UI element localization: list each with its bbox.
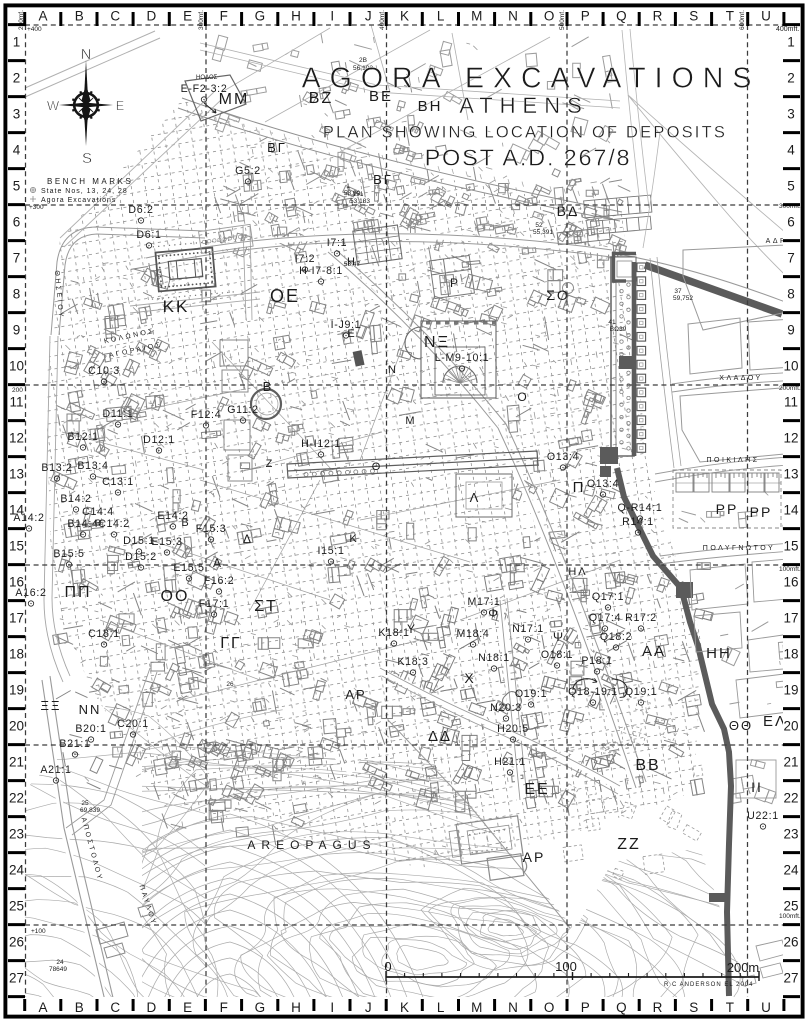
svg-text:HOΔOΣ: HOΔOΣ (196, 75, 218, 81)
svg-text:B20:1: B20:1 (75, 723, 106, 735)
svg-text:26: 26 (783, 935, 798, 950)
svg-text:M17:1: M17:1 (468, 596, 501, 608)
svg-text:15: 15 (783, 539, 798, 554)
svg-text:14: 14 (9, 503, 25, 518)
svg-text:O: O (544, 9, 555, 24)
svg-text:G: G (255, 1000, 266, 1015)
svg-text:D: D (147, 9, 157, 24)
svg-text:C14:2: C14:2 (98, 518, 130, 530)
svg-text:ΠΟΛΥΓΝΩΤΟΥ: ΠΟΛΥΓΝΩΤΟΥ (703, 545, 775, 552)
svg-text:I15:1: I15:1 (317, 545, 344, 557)
svg-text:ΝΝ: ΝΝ (79, 702, 102, 717)
svg-text:1: 1 (787, 35, 795, 50)
svg-text:ΠΟΙΚΙΛΗΣ: ΠΟΙΚΙΛΗΣ (706, 457, 759, 464)
svg-text:Ρ: Ρ (450, 276, 460, 290)
svg-text:F: F (220, 1000, 228, 1015)
svg-text:I: I (330, 9, 334, 24)
svg-text:200m: 200m (727, 960, 760, 975)
svg-text:13: 13 (783, 467, 798, 482)
svg-text:ATHENS: ATHENS (459, 93, 589, 118)
svg-text:100mft.: 100mft. (779, 913, 801, 920)
svg-text:ΟΕ: ΟΕ (270, 286, 300, 306)
svg-text:3: 3 (13, 107, 21, 122)
svg-text:PLAN SHOWING LOCATION OF D: PLAN SHOWING LOCATION OF DEPOSITS (323, 124, 727, 142)
svg-text:22: 22 (9, 791, 24, 806)
svg-text:D: D (147, 1000, 157, 1015)
svg-text:J: J (365, 9, 372, 24)
svg-text:D11:1: D11:1 (103, 408, 134, 420)
svg-text:D6:1: D6:1 (136, 229, 161, 241)
svg-text:P: P (581, 1000, 590, 1015)
svg-text:M: M (471, 1000, 482, 1015)
svg-text:AGORA EXCAVATIONS: AGORA EXCAVATIONS (302, 63, 761, 95)
svg-text:R C ANDERSON EL 2004: R C ANDERSON EL 2004 (664, 982, 753, 988)
svg-text:22: 22 (783, 791, 798, 806)
svg-text:K: K (400, 1000, 409, 1015)
svg-text:S: S (689, 1000, 698, 1015)
svg-text:E: E (116, 98, 125, 113)
svg-text:B: B (75, 9, 84, 24)
svg-text:P18:1: P18:1 (581, 655, 612, 667)
svg-text:ΟΟ: ΟΟ (161, 588, 190, 605)
svg-text:B15:5: B15:5 (53, 548, 84, 560)
svg-text:+300: +300 (29, 204, 44, 211)
svg-text:C20:1: C20:1 (117, 718, 149, 730)
svg-text:P: P (581, 9, 590, 24)
svg-text:11: 11 (784, 395, 798, 410)
svg-text:ΞΞ: ΞΞ (41, 698, 62, 713)
svg-text:B14:4: B14:4 (67, 518, 98, 530)
svg-text:25: 25 (81, 800, 89, 807)
svg-text:O13:4: O13:4 (587, 478, 619, 490)
svg-text:E15:5: E15:5 (173, 562, 204, 574)
svg-text:R17:2: R17:2 (625, 612, 657, 624)
svg-text:ΖΖ: ΖΖ (617, 836, 641, 853)
svg-text:21: 21 (9, 755, 24, 770)
svg-text:Ψ: Ψ (553, 630, 565, 644)
svg-text:F: F (220, 9, 228, 24)
svg-text:Q17:4: Q17:4 (589, 612, 621, 624)
svg-text:R: R (653, 9, 663, 24)
svg-text:H20:5: H20:5 (497, 723, 529, 735)
svg-text:+400: +400 (27, 26, 42, 33)
svg-text:A21:1: A21:1 (40, 764, 71, 776)
svg-text:14: 14 (783, 503, 799, 518)
svg-text:O19:1: O19:1 (515, 688, 547, 700)
svg-text:25: 25 (783, 899, 798, 914)
svg-text:Λ: Λ (470, 490, 481, 505)
svg-text:ΘΘ: ΘΘ (729, 718, 753, 733)
svg-text:C13:1: C13:1 (102, 476, 134, 488)
svg-text:ΚΚ: ΚΚ (163, 297, 190, 316)
svg-text:G5:2: G5:2 (235, 165, 261, 177)
svg-text:U22:1: U22:1 (747, 810, 779, 822)
svg-text:18: 18 (783, 647, 798, 662)
svg-text:BENCH MARKS: BENCH MARKS (47, 177, 133, 186)
svg-text:ΒΒ: ΒΒ (635, 757, 660, 774)
svg-text:2: 2 (13, 71, 21, 86)
svg-text:200: 200 (12, 387, 23, 394)
svg-text:B13:2: B13:2 (41, 462, 72, 474)
svg-text:L-M9-10:1: L-M9-10:1 (435, 352, 490, 364)
svg-text:13: 13 (9, 467, 24, 482)
svg-text:ΠΠ: ΠΠ (64, 584, 91, 601)
svg-text:15: 15 (9, 539, 24, 554)
svg-text:500mf.: 500mf. (559, 10, 566, 30)
svg-text:ΒΓ: ΒΓ (373, 172, 393, 187)
svg-text:Ζ: Ζ (266, 458, 275, 470)
svg-text:Q17:1: Q17:1 (592, 591, 624, 603)
svg-text:ΡΡ: ΡΡ (716, 501, 739, 517)
svg-text:8: 8 (13, 287, 21, 302)
svg-text:U: U (761, 1000, 771, 1015)
svg-text:K: K (400, 9, 409, 24)
svg-text:W: W (47, 98, 60, 113)
svg-text:N: N (508, 1000, 518, 1015)
svg-text:C10:3: C10:3 (88, 365, 120, 377)
svg-text:53,183: 53,183 (350, 198, 370, 205)
svg-text:3: 3 (787, 107, 795, 122)
svg-text:R: R (653, 1000, 663, 1015)
svg-text:21: 21 (783, 755, 798, 770)
svg-text:24: 24 (783, 863, 799, 878)
svg-text:7: 7 (787, 251, 795, 266)
svg-text:N: N (508, 9, 518, 24)
svg-text:POST A.D. 267/8: POST A.D. 267/8 (425, 145, 632, 171)
svg-text:Q: Q (616, 9, 627, 24)
svg-text:ΓΓ: ΓΓ (220, 635, 242, 652)
svg-text:ΗΛ: ΗΛ (568, 566, 587, 578)
svg-text:ΑΡ: ΑΡ (345, 687, 366, 702)
svg-text:N17:1: N17:1 (512, 623, 544, 635)
svg-text:400mft.: 400mft. (776, 26, 799, 33)
svg-text:Β: Β (263, 379, 274, 394)
svg-text:24: 24 (9, 863, 25, 878)
svg-text:D15:1: D15:1 (123, 535, 155, 547)
svg-text:F16:2: F16:2 (204, 575, 235, 587)
svg-text:Π: Π (573, 479, 584, 496)
svg-text:Q18:2: Q18:2 (600, 631, 632, 643)
svg-text:S: S (82, 150, 92, 167)
svg-text:Agora Excavations: Agora Excavations (41, 197, 116, 204)
svg-text:11: 11 (9, 395, 23, 410)
svg-text:6: 6 (13, 215, 21, 230)
svg-text:I-J9:1: I-J9:1 (331, 319, 362, 331)
svg-text:E15:3: E15:3 (151, 536, 182, 548)
svg-text:Ν: Ν (388, 364, 398, 376)
svg-text:2: 2 (787, 71, 795, 86)
svg-text:N20:3: N20:3 (490, 702, 522, 714)
svg-text:151: 151 (353, 191, 364, 198)
svg-text:Α: Α (213, 556, 223, 570)
svg-text:16: 16 (783, 575, 798, 590)
svg-text:H: H (291, 1000, 301, 1015)
svg-text:Q-R14:1: Q-R14:1 (618, 502, 663, 514)
svg-text:ΡΡ: ΡΡ (750, 504, 773, 520)
svg-text:Κ: Κ (349, 533, 358, 545)
svg-text:H-I12:1: H-I12:1 (301, 438, 341, 450)
svg-text:+100: +100 (31, 928, 46, 935)
svg-text:Ο: Ο (517, 390, 528, 404)
svg-text:24: 24 (56, 959, 64, 966)
svg-text:E: E (183, 1000, 192, 1015)
svg-text:A: A (38, 9, 47, 24)
svg-text:9: 9 (13, 323, 21, 338)
svg-text:ΧΛΑΔΟΥ: ΧΛΑΔΟΥ (719, 375, 762, 382)
svg-text:ΣΤ: ΣΤ (254, 598, 278, 615)
svg-text:ΑΑ: ΑΑ (642, 643, 666, 660)
svg-text:37: 37 (674, 288, 682, 295)
svg-text:17: 17 (9, 611, 24, 626)
svg-text:17: 17 (783, 611, 798, 626)
svg-text:52: 52 (535, 222, 543, 229)
svg-text:Θ: Θ (372, 461, 383, 473)
svg-text:6: 6 (787, 215, 795, 230)
svg-text:ΒΓ: ΒΓ (267, 140, 287, 155)
svg-text:U: U (761, 9, 771, 24)
svg-text:T: T (726, 9, 734, 24)
svg-text:0: 0 (384, 959, 391, 974)
svg-text:23: 23 (783, 827, 798, 842)
svg-text:10: 10 (9, 359, 24, 374)
svg-text:ΒΗ: ΒΗ (418, 98, 443, 115)
svg-text:Μ: Μ (405, 415, 416, 427)
svg-text:ΕΕ: ΕΕ (524, 781, 549, 798)
svg-text:4: 4 (13, 143, 21, 158)
svg-text:D12:1: D12:1 (143, 434, 175, 446)
svg-text:C: C (110, 1000, 120, 1015)
svg-text:19: 19 (9, 683, 24, 698)
svg-text:K18:3: K18:3 (397, 656, 428, 668)
svg-text:10: 10 (783, 359, 798, 374)
svg-text:C: C (110, 9, 120, 24)
svg-text:I7:1: I7:1 (327, 237, 347, 249)
svg-text:H-I7-8:1: H-I7-8:1 (299, 265, 343, 277)
svg-text:B13:4: B13:4 (77, 460, 108, 472)
svg-text:55,391: 55,391 (533, 229, 553, 236)
svg-text:1: 1 (346, 183, 350, 190)
svg-text:Φ: Φ (488, 606, 500, 620)
svg-text:100mft.: 100mft. (779, 566, 801, 573)
svg-text:N18:1: N18:1 (478, 652, 510, 664)
svg-text:AREOPAGUS: AREOPAGUS (247, 838, 376, 852)
svg-text:5: 5 (787, 179, 795, 194)
svg-text:ΔΔ: ΔΔ (428, 728, 452, 745)
svg-text:20: 20 (783, 719, 798, 734)
svg-text:100: 100 (555, 959, 577, 974)
svg-text:C18:1: C18:1 (88, 628, 120, 640)
svg-text:53,47: 53,47 (344, 261, 361, 268)
svg-text:B21:1: B21:1 (59, 738, 90, 750)
svg-text:F17:1: F17:1 (199, 598, 230, 610)
svg-text:B: B (75, 1000, 84, 1015)
svg-text:9: 9 (787, 323, 795, 338)
svg-text:7: 7 (13, 251, 21, 266)
svg-text:27: 27 (9, 971, 24, 986)
svg-text:25: 25 (9, 899, 24, 914)
svg-text:26: 26 (9, 935, 24, 950)
svg-text:Δ: Δ (243, 532, 253, 546)
svg-text:78649: 78649 (49, 966, 67, 973)
svg-text:16: 16 (9, 575, 24, 590)
svg-text:G11:2: G11:2 (227, 404, 259, 416)
svg-text:O18:1: O18:1 (541, 649, 573, 661)
svg-text:ΑΡ: ΑΡ (523, 849, 546, 865)
svg-text:C14:4: C14:4 (82, 506, 114, 518)
svg-text:A: A (38, 1000, 47, 1015)
svg-text:Q: Q (616, 1000, 627, 1015)
svg-text:E: E (183, 9, 192, 24)
svg-text:Q19:1: Q19:1 (625, 686, 657, 698)
svg-text:K18:1: K18:1 (378, 627, 409, 639)
svg-text:J: J (365, 1000, 372, 1015)
svg-text:I7:2: I7:2 (295, 253, 315, 265)
svg-text:H21:1: H21:1 (494, 756, 526, 768)
svg-text:Q18-19:1: Q18-19:1 (568, 686, 618, 698)
svg-text:5: 5 (13, 179, 21, 194)
svg-text:D6:2: D6:2 (128, 204, 153, 216)
svg-text:T: T (726, 1000, 734, 1015)
svg-text:BΩ39: BΩ39 (610, 326, 627, 333)
svg-text:ΣΟ: ΣΟ (546, 287, 570, 303)
svg-text:H: H (291, 9, 301, 24)
svg-text:27: 27 (783, 971, 798, 986)
svg-text:ΝΞ: ΝΞ (424, 334, 450, 351)
svg-text:O13:4: O13:4 (547, 451, 579, 463)
svg-text:R14:1: R14:1 (622, 516, 654, 528)
svg-text:12: 12 (783, 431, 798, 446)
svg-text:19: 19 (783, 683, 798, 698)
svg-text:59,752: 59,752 (673, 295, 693, 302)
svg-text:M: M (471, 9, 482, 24)
svg-text:F15:3: F15:3 (196, 523, 227, 535)
svg-text:1: 1 (13, 35, 21, 50)
svg-text:B12:1: B12:1 (67, 431, 98, 443)
svg-text:ΗΗ: ΗΗ (706, 645, 732, 662)
svg-text:8: 8 (787, 287, 795, 302)
svg-text:L: L (437, 9, 445, 24)
svg-text:23: 23 (9, 827, 24, 842)
svg-text:S: S (689, 9, 698, 24)
svg-text:M18:4: M18:4 (457, 628, 490, 640)
svg-text:18: 18 (9, 647, 24, 662)
svg-text:O: O (544, 1000, 555, 1015)
svg-text:20: 20 (9, 719, 24, 734)
svg-text:E14:2: E14:2 (157, 510, 188, 522)
svg-text:26: 26 (226, 681, 234, 688)
svg-text:ΙΙ: ΙΙ (751, 779, 763, 795)
svg-text:State Nos, 13, 24, 28: State Nos, 13, 24, 28 (41, 188, 128, 195)
svg-text:N: N (81, 46, 92, 63)
svg-text:600mf.: 600mf. (739, 10, 746, 30)
svg-text:12: 12 (9, 431, 24, 446)
svg-text:Χ: Χ (464, 670, 475, 686)
svg-text:B14:2: B14:2 (60, 493, 91, 505)
svg-text:L: L (437, 1000, 445, 1015)
svg-text:G: G (255, 9, 266, 24)
svg-text:I: I (330, 1000, 334, 1015)
svg-text:41: 41 (608, 319, 616, 326)
svg-text:4: 4 (787, 143, 795, 158)
svg-text:69,839: 69,839 (80, 807, 100, 814)
svg-text:D15:2: D15:2 (125, 551, 157, 563)
